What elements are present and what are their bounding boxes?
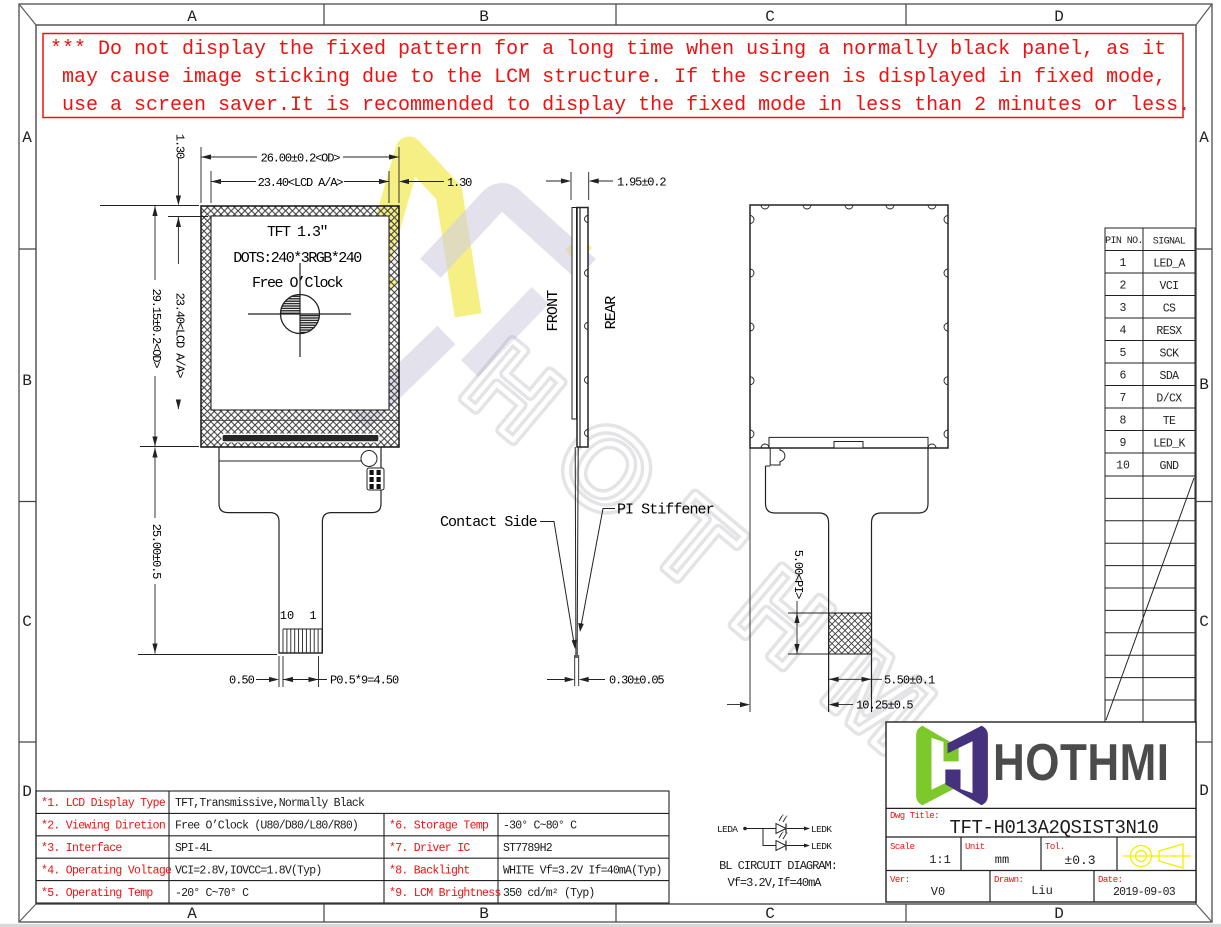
svg-text:-20° C~70° C: -20° C~70° C <box>175 887 249 900</box>
svg-text:TFT-H013A2QSIST3N10: TFT-H013A2QSIST3N10 <box>949 817 1158 839</box>
svg-text:1.30: 1.30 <box>173 134 187 159</box>
svg-text:LEDK: LEDK <box>811 841 832 852</box>
svg-text:may cause image sticking due t: may cause image sticking due to the LCM … <box>62 66 1166 89</box>
svg-text:*9. LCM Brightness: *9. LCM Brightness <box>389 887 501 900</box>
svg-text:SDA: SDA <box>1160 370 1180 383</box>
svg-text:B: B <box>22 372 32 390</box>
svg-text:C: C <box>1199 613 1209 631</box>
svg-text:C: C <box>765 8 775 26</box>
svg-text:REAR: REAR <box>603 296 620 330</box>
svg-text:P0.5*9=4.50: P0.5*9=4.50 <box>330 674 399 688</box>
svg-text:TE: TE <box>1163 415 1176 428</box>
svg-text:C: C <box>765 905 775 923</box>
svg-text:B: B <box>479 8 489 26</box>
svg-text:10: 10 <box>1116 460 1130 473</box>
svg-text:HOTHMI: HOTHMI <box>993 734 1169 792</box>
svg-text:BL CIRCUIT DIAGRAM:: BL CIRCUIT DIAGRAM: <box>719 859 837 873</box>
svg-text:0.50: 0.50 <box>229 674 255 688</box>
svg-text:SCK: SCK <box>1160 348 1180 361</box>
svg-text:±0.3: ±0.3 <box>1064 853 1095 868</box>
svg-text:SIGNAL: SIGNAL <box>1153 237 1186 248</box>
svg-text:29.15±0.2<OD>: 29.15±0.2<OD> <box>149 289 163 369</box>
svg-text:350 cd/m² (Typ): 350 cd/m² (Typ) <box>503 887 595 900</box>
svg-text:FRONT: FRONT <box>545 290 562 332</box>
svg-text:5.50±0.1: 5.50±0.1 <box>884 673 935 687</box>
svg-text:use a screen saver.It is recom: use a screen saver.It is recommended to … <box>62 94 1190 117</box>
svg-text:WHITE Vf=3.2V If=40mA(Typ): WHITE Vf=3.2V If=40mA(Typ) <box>503 865 662 878</box>
svg-text:23.40<LCD A/A>: 23.40<LCD A/A> <box>258 176 344 190</box>
svg-text:-30° C~80° C: -30° C~80° C <box>503 820 577 833</box>
svg-text:*1. LCD Display Type: *1. LCD Display Type <box>41 797 166 810</box>
svg-text:LED_K: LED_K <box>1153 438 1185 451</box>
svg-text:Drawn:: Drawn: <box>994 875 1023 885</box>
svg-text:*3. Interface: *3. Interface <box>41 842 122 855</box>
svg-text:B: B <box>1199 376 1209 394</box>
svg-text:1.95±0.2: 1.95±0.2 <box>617 176 666 190</box>
svg-text:4: 4 <box>1120 325 1127 338</box>
svg-text:5.00<PI>: 5.00<PI> <box>791 550 805 599</box>
svg-text:A: A <box>22 129 32 147</box>
svg-text:25.00±0.5: 25.00±0.5 <box>149 524 163 579</box>
svg-text:10: 10 <box>280 609 294 623</box>
svg-text:Dwg Title:: Dwg Title: <box>890 811 939 821</box>
svg-text:Unit: Unit <box>965 842 985 852</box>
svg-text:Scale: Scale <box>890 842 915 852</box>
svg-text:RESX: RESX <box>1156 325 1182 338</box>
svg-text:5: 5 <box>1120 347 1127 360</box>
svg-text:*2. Viewing Diretion: *2. Viewing Diretion <box>41 820 165 833</box>
svg-text:*8. Backlight: *8. Backlight <box>389 865 470 878</box>
svg-text:VCI=2.8V,IOVCC=1.8V(Typ): VCI=2.8V,IOVCC=1.8V(Typ) <box>175 865 321 878</box>
svg-text:Liu: Liu <box>1031 884 1053 898</box>
svg-text:*4. Operating Voltage: *4. Operating Voltage <box>41 865 172 878</box>
svg-text:1: 1 <box>309 609 316 623</box>
svg-text:C: C <box>22 613 32 631</box>
svg-text:Ver:: Ver: <box>890 875 910 885</box>
svg-text:SPI-4L: SPI-4L <box>175 842 213 855</box>
svg-text:D: D <box>1199 782 1209 800</box>
svg-text:A: A <box>187 905 197 923</box>
svg-text:PIN NO.: PIN NO. <box>1105 236 1143 247</box>
svg-text:6: 6 <box>1120 370 1127 383</box>
svg-text:D: D <box>22 783 32 801</box>
svg-text:2019-09-03: 2019-09-03 <box>1113 886 1176 899</box>
svg-text:mm: mm <box>995 853 1009 867</box>
svg-text:B: B <box>479 905 489 923</box>
svg-text:Tol.: Tol. <box>1045 842 1065 852</box>
svg-text:D: D <box>1054 8 1064 26</box>
svg-text:0.30±0.05: 0.30±0.05 <box>609 674 664 688</box>
svg-text:*7. Driver IC: *7. Driver IC <box>389 842 470 855</box>
svg-text:1.30: 1.30 <box>447 176 472 190</box>
svg-text:10.25±0.5: 10.25±0.5 <box>856 699 913 713</box>
svg-text:PI Stiffener: PI Stiffener <box>617 502 714 519</box>
svg-text:9: 9 <box>1120 437 1127 450</box>
svg-text:1: 1 <box>1120 257 1127 270</box>
svg-text:D/CX: D/CX <box>1156 393 1182 406</box>
svg-text:LEDK: LEDK <box>811 824 832 835</box>
svg-text:TFT 1.3″: TFT 1.3″ <box>267 224 327 241</box>
svg-text:VCI: VCI <box>1160 280 1179 293</box>
svg-text:3: 3 <box>1120 302 1127 315</box>
svg-text:LEDA: LEDA <box>717 824 738 835</box>
svg-text:DOTS:240*3RGB*240: DOTS:240*3RGB*240 <box>233 250 362 267</box>
svg-text:7: 7 <box>1120 392 1127 405</box>
svg-text:CS: CS <box>1163 303 1176 316</box>
svg-text:Free O’Clock: Free O’Clock <box>252 275 344 292</box>
svg-text:GND: GND <box>1160 460 1180 473</box>
svg-text:A: A <box>1199 129 1209 147</box>
svg-text:D: D <box>1054 905 1064 923</box>
svg-text:*** Do not display the fixed p: *** Do not display the fixed pattern for… <box>50 38 1166 61</box>
svg-text:*6. Storage Temp: *6. Storage Temp <box>389 820 489 833</box>
svg-text:2: 2 <box>1120 280 1127 293</box>
svg-text:LED_A: LED_A <box>1153 258 1185 271</box>
svg-text:Vf=3.2V,If=40mA: Vf=3.2V,If=40mA <box>727 876 822 890</box>
svg-text:Free O’Clock (U80/D80/L80/R80): Free O’Clock (U80/D80/L80/R80) <box>175 820 358 833</box>
svg-text:1:1: 1:1 <box>929 853 951 867</box>
svg-text:TFT,Transmissive,Normally Blac: TFT,Transmissive,Normally Black <box>175 797 365 810</box>
svg-text:*5. Operating Temp: *5. Operating Temp <box>41 887 153 900</box>
svg-text:ST7789H2: ST7789H2 <box>503 842 553 855</box>
svg-text:A: A <box>187 8 197 26</box>
svg-text:23.40<LCD A/A>: 23.40<LCD A/A> <box>173 293 187 379</box>
svg-text:Date:: Date: <box>1098 875 1123 885</box>
svg-text:8: 8 <box>1120 415 1127 428</box>
svg-text:26.00±0.2<OD>: 26.00±0.2<OD> <box>261 152 341 166</box>
svg-text:Contact Side: Contact Side <box>440 514 538 531</box>
svg-text:V0: V0 <box>931 885 945 899</box>
